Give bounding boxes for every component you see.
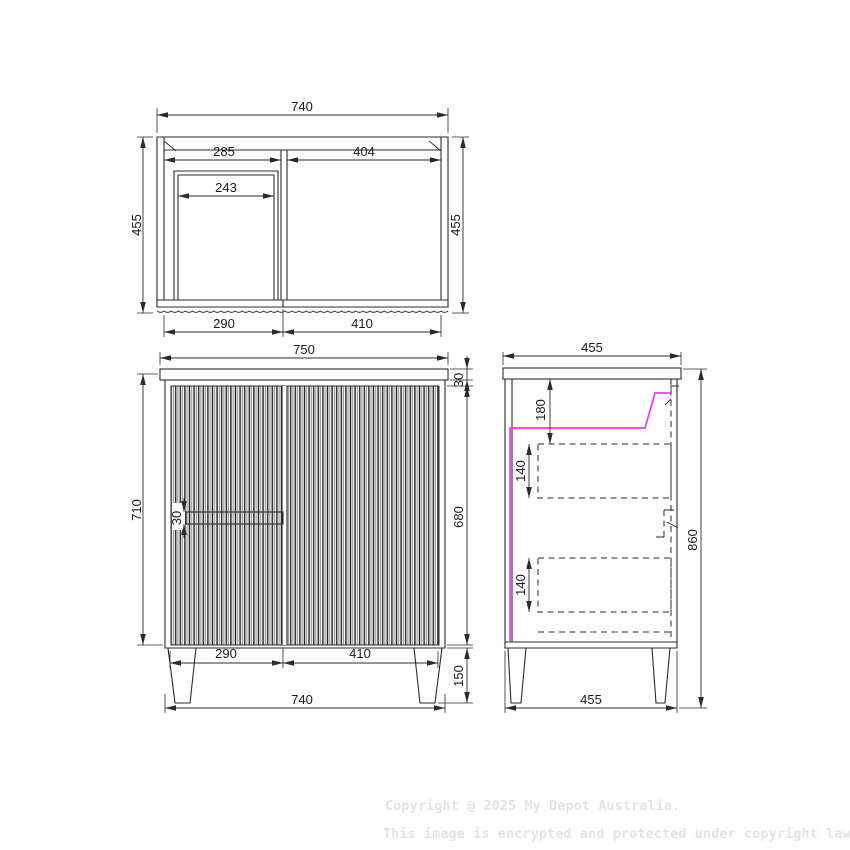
dim-front-door-right: 410 <box>349 646 371 661</box>
dim-plan-overall-width: 740 <box>291 99 313 114</box>
dim-plan-opening-right: 404 <box>353 144 375 159</box>
vanity-dimension-drawing: 740 455 455 285 404 243 290 410 <box>0 0 850 850</box>
dim-side-overall-height: 860 <box>685 529 700 551</box>
watermark-line-1: Copyright @ 2025 My Depot Australia. <box>385 798 680 814</box>
dim-plan-depth-right: 455 <box>448 214 463 236</box>
watermark-line-2: This image is encrypted and protected un… <box>383 826 850 842</box>
dim-side-bottom-depth: 455 <box>580 692 602 707</box>
dim-front-height-no-legs: 710 <box>129 499 144 521</box>
dim-plan-depth-left: 455 <box>129 214 144 236</box>
dim-plan-door-left: 290 <box>213 316 235 331</box>
dim-side-basin-clearance: 180 <box>533 399 548 421</box>
front-fluted-doors <box>171 386 439 645</box>
dim-side-drawer-bottom: 140 <box>513 574 528 596</box>
dim-plan-opening-left: 285 <box>213 144 235 159</box>
dim-front-leg-height: 150 <box>451 665 466 687</box>
dim-front-top-width: 750 <box>293 342 315 357</box>
dim-plan-door-right: 410 <box>351 316 373 331</box>
dim-front-door-left: 290 <box>215 646 237 661</box>
dim-plan-inner-clear: 243 <box>215 180 237 195</box>
dim-side-drawer-top: 140 <box>513 460 528 482</box>
technical-drawing-page: 740 455 455 285 404 243 290 410 <box>0 0 850 850</box>
dim-side-top-depth: 455 <box>581 340 603 355</box>
dim-front-door-height: 680 <box>451 506 466 528</box>
dim-front-bottom-width: 740 <box>291 692 313 707</box>
dim-front-benchtop-thickness: 30 <box>451 373 466 387</box>
dim-front-handle-height: 30 <box>169 511 184 525</box>
